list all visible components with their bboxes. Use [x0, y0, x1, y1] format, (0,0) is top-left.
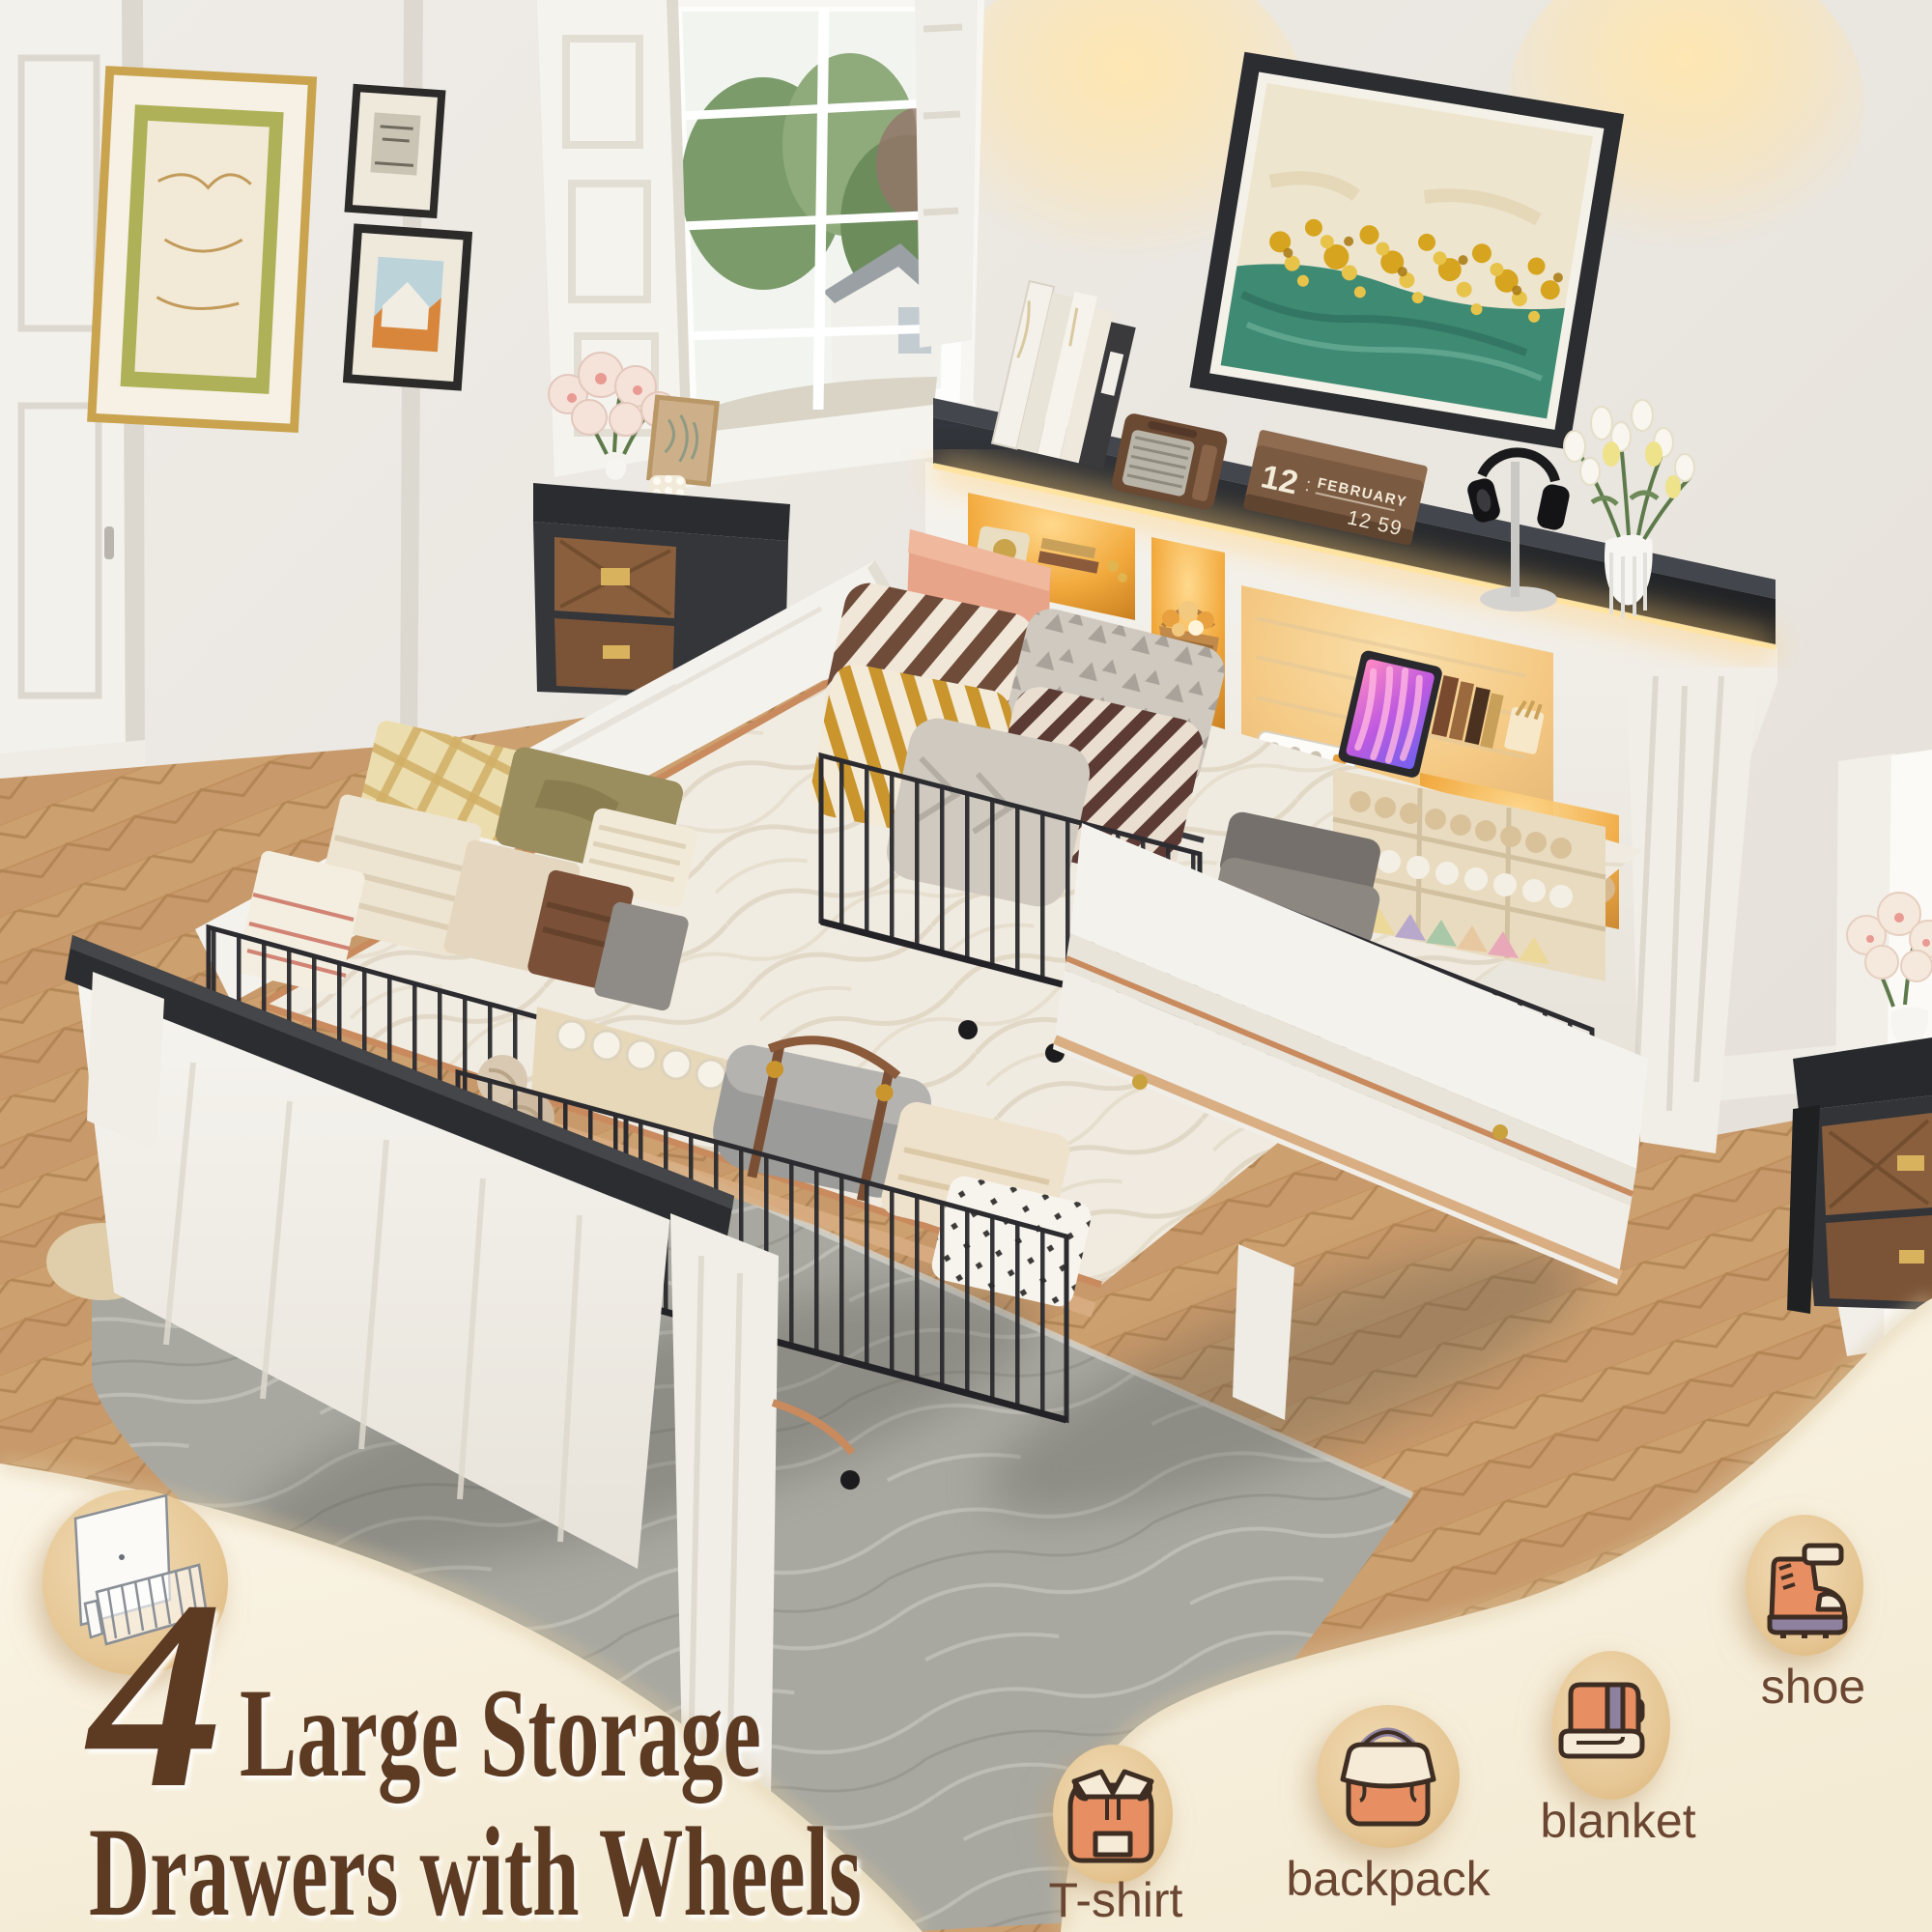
window-shutter-right — [915, 0, 978, 348]
product-marketing-image: NOV 05 — [0, 0, 1932, 1932]
bed-leg — [87, 972, 164, 1150]
bed-leg — [1233, 1244, 1294, 1420]
drawer-handle — [603, 645, 630, 659]
black-frame-small — [349, 88, 442, 214]
headline-line2: Drawers with Wheels — [89, 1801, 862, 1932]
drawer-handle — [1897, 1155, 1924, 1171]
window-mullion — [818, 8, 824, 410]
gold-button — [1492, 1124, 1508, 1140]
gold-button — [1132, 1074, 1148, 1090]
caster-wheel — [840, 1470, 860, 1490]
black-frame-landscape — [348, 228, 469, 386]
backpack-icon — [1343, 1732, 1434, 1824]
drawer-handle — [601, 568, 630, 585]
blanket-icon — [1561, 1685, 1642, 1756]
shoe-icon — [1770, 1546, 1845, 1638]
badge-label: blanket — [1540, 1794, 1695, 1848]
badge-label: backpack — [1286, 1852, 1491, 1906]
drawer-handle — [1899, 1250, 1924, 1264]
badge-shoe: shoe — [1746, 1515, 1865, 1714]
gold-frame-art — [92, 71, 313, 428]
headline-line1: Large Storage — [240, 1662, 761, 1804]
photo-frame — [649, 397, 717, 484]
door-handle — [104, 526, 114, 559]
gallery-frames — [92, 71, 468, 428]
headline-number: 4 — [85, 1544, 224, 1844]
wall-painting — [1190, 52, 1625, 450]
badge-label: T-shirt — [1049, 1873, 1183, 1927]
badge-label: shoe — [1761, 1660, 1865, 1714]
caster-wheel — [958, 1020, 978, 1039]
bedroom-scene: NOV 05 — [0, 0, 1932, 1932]
flip-clock-day: 12 — [1258, 458, 1301, 501]
t-shirt-icon — [1070, 1772, 1151, 1861]
